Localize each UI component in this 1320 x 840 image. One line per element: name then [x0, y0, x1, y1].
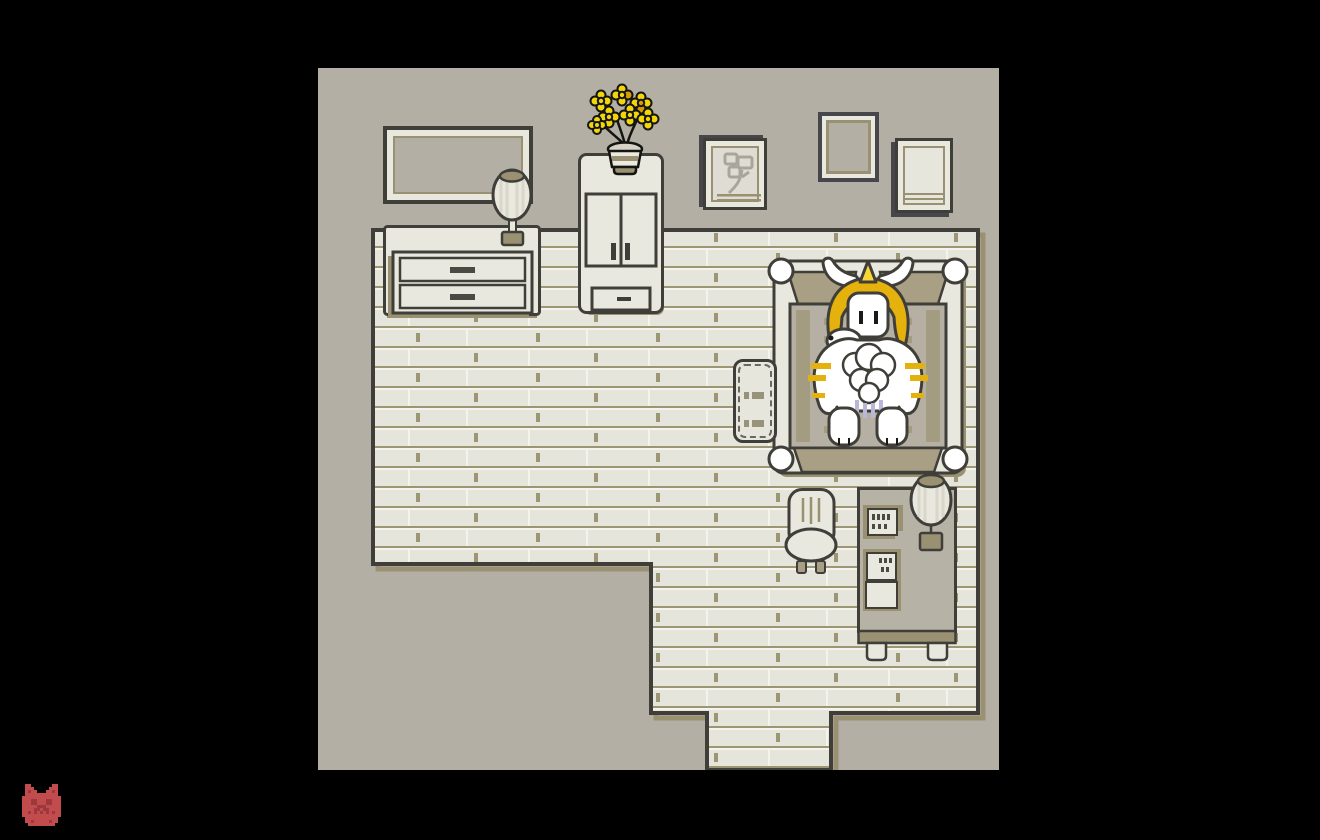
eye-right — [874, 311, 878, 324]
rug-mark — [744, 392, 749, 399]
rug-mark — [744, 420, 749, 427]
desk-lamp — [910, 473, 954, 553]
picture-frame-sketch — [703, 138, 767, 210]
flower-vase — [585, 87, 665, 177]
vase-foot — [614, 167, 636, 174]
eye-left — [859, 311, 863, 324]
frame-right-canvas — [903, 146, 945, 205]
game-viewport[interactable] — [318, 68, 999, 770]
chair-seat — [786, 529, 836, 561]
wardrobe-handle-right — [625, 243, 630, 260]
chair-legs — [797, 561, 825, 573]
desk-lamp-top — [918, 475, 944, 487]
frame-middle-canvas — [826, 120, 871, 174]
flower-cluster — [588, 85, 659, 135]
note-paper — [868, 509, 897, 535]
lamp-base — [502, 232, 523, 245]
paper-bottom — [866, 582, 897, 608]
bedside-rug — [733, 359, 777, 443]
desk-lamp-base — [920, 533, 942, 550]
wardrobe-drawer-handle — [617, 297, 631, 301]
vase-stripe — [612, 156, 638, 161]
desk-legs — [867, 643, 947, 660]
picture-frame-right — [895, 138, 953, 213]
sleeping-monster — [803, 253, 933, 448]
paper-top — [867, 553, 896, 580]
rug-mark — [752, 392, 764, 399]
desk-rim — [859, 631, 956, 643]
lamp-shade-top — [500, 171, 524, 182]
flower-sketch — [715, 150, 765, 202]
rug-mark — [752, 420, 764, 427]
chair — [785, 488, 839, 576]
crown-tuft — [860, 261, 876, 282]
feet — [829, 408, 907, 445]
footboard — [794, 448, 942, 472]
frame-sketch-mat — [711, 146, 759, 202]
wardrobe-handle-left — [611, 243, 616, 260]
picture-frame-middle — [818, 112, 879, 182]
nostril — [829, 336, 834, 341]
drawer-top-handle — [450, 267, 475, 273]
screen — [0, 0, 1320, 840]
dresser-lamp — [493, 168, 533, 248]
drawer-bottom-handle — [450, 294, 475, 300]
demon-face-icon[interactable] — [22, 784, 61, 826]
wardrobe — [578, 153, 664, 316]
